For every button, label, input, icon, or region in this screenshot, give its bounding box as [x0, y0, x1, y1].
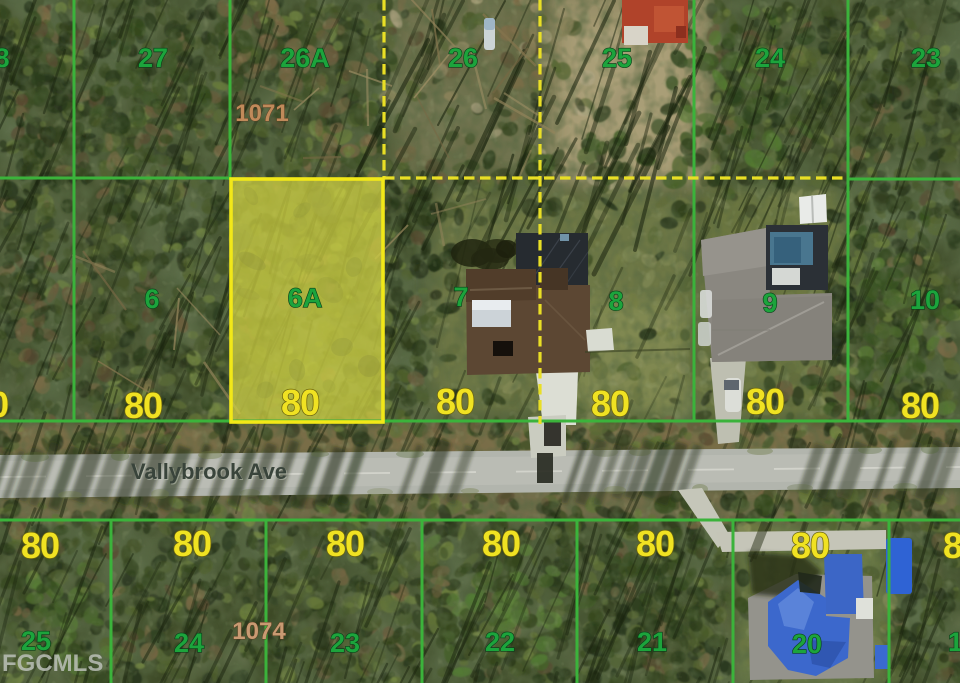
svg-text:80: 80	[21, 525, 59, 566]
svg-text:80: 80	[124, 385, 162, 426]
svg-text:6: 6	[144, 284, 159, 314]
svg-text:80: 80	[0, 384, 8, 425]
svg-text:26: 26	[448, 43, 478, 73]
svg-text:20: 20	[792, 629, 822, 659]
svg-text:9: 9	[762, 288, 777, 318]
svg-text:1074: 1074	[232, 618, 286, 645]
svg-text:80: 80	[326, 523, 364, 564]
svg-text:80: 80	[636, 523, 674, 564]
svg-text:80: 80	[281, 382, 319, 423]
svg-text:80: 80	[482, 523, 520, 564]
svg-text:8: 8	[608, 286, 623, 316]
svg-text:26A: 26A	[280, 43, 330, 73]
svg-text:19: 19	[948, 627, 960, 657]
svg-text:27: 27	[138, 43, 168, 73]
svg-text:8: 8	[0, 43, 10, 73]
svg-text:10: 10	[910, 285, 940, 315]
svg-text:7: 7	[453, 282, 468, 312]
svg-text:24: 24	[755, 43, 785, 73]
svg-text:23: 23	[330, 628, 360, 658]
svg-text:80: 80	[901, 385, 939, 426]
svg-text:FGCMLS: FGCMLS	[2, 650, 103, 677]
svg-text:24: 24	[174, 628, 204, 658]
svg-text:80: 80	[943, 525, 960, 566]
svg-text:23: 23	[911, 43, 941, 73]
svg-text:80: 80	[173, 523, 211, 564]
svg-text:6A: 6A	[288, 283, 323, 313]
svg-text:25: 25	[602, 43, 632, 73]
svg-text:22: 22	[485, 627, 515, 657]
svg-text:Vallybrook Ave: Vallybrook Ave	[131, 459, 287, 484]
svg-text:1071: 1071	[235, 100, 288, 127]
svg-text:80: 80	[591, 383, 629, 424]
svg-text:80: 80	[746, 381, 784, 422]
svg-text:80: 80	[436, 381, 474, 422]
svg-text:21: 21	[637, 627, 667, 657]
svg-text:80: 80	[791, 525, 829, 566]
